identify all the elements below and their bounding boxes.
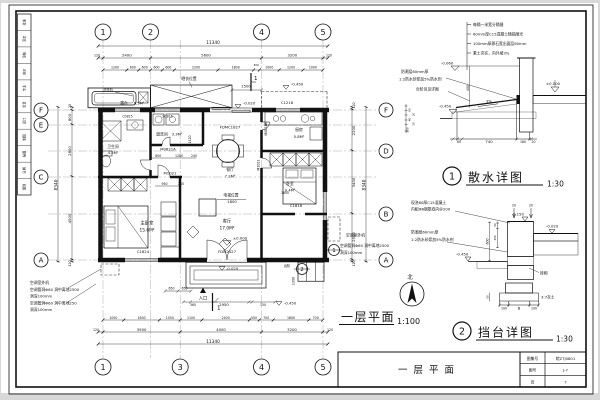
titleblock-field-value: J-7 (562, 368, 568, 373)
level-entry: -0.020 (226, 266, 239, 271)
d1-level: -0.450 (439, 104, 452, 109)
signature-cell: 图别 (21, 184, 26, 190)
dim: 2800 (67, 146, 72, 156)
axis-label: E (39, 122, 43, 130)
plan-title: 一层平面 (341, 310, 395, 324)
room-name: 露台 (120, 101, 128, 106)
opening-label: M1021 (164, 171, 178, 176)
dim: 2950 (219, 302, 229, 307)
dim: 1100 (187, 316, 195, 320)
room-name: 盥洗间 (156, 132, 168, 137)
dim: 1420 (188, 135, 192, 143)
section-mark: 1 (217, 306, 221, 312)
dim: 1000 (309, 66, 317, 70)
signature-cell: 日期 (21, 167, 26, 173)
d2-note: 现浇60厚C15混凝土 (411, 200, 446, 205)
dim: 1800 (138, 316, 146, 320)
axis-label: B (384, 211, 389, 219)
tv-label: 电视位置 (223, 193, 238, 198)
dim: 1050 (109, 316, 117, 320)
dim: 600 (130, 66, 136, 70)
ac-note: 空调管洞Φ60 洞中离地250 (30, 301, 77, 306)
d2-dim: 20 (512, 204, 516, 208)
d2-dim: 600 (486, 238, 490, 244)
dim: 3200 (287, 327, 297, 332)
dim: 700 (263, 316, 269, 320)
room-area: 7.2M² (225, 174, 236, 179)
room-name: 餐厅 (226, 167, 234, 172)
dim: 120 (327, 328, 333, 332)
d1-dim: 20 (412, 113, 416, 117)
dim: 1500 (241, 84, 251, 89)
dim: 120 (68, 260, 72, 266)
level-side: -0.450 (284, 301, 297, 306)
d1-note: 100mm厚卵石宽出面层60mm (473, 41, 527, 46)
north-label: 北 (407, 273, 413, 281)
level-rear: -0.450 (291, 82, 304, 87)
room-name: 卧室 (286, 181, 294, 186)
steps-label: 台阶 (284, 263, 291, 268)
axis-label: 3 (178, 363, 183, 372)
dim: 1200 (111, 66, 119, 70)
d1-note: 每隔一米宽分隔缝 (473, 22, 504, 27)
dim: 600 (142, 66, 148, 70)
detail-ref-1: 1 (332, 248, 336, 254)
dim: 120 (94, 54, 100, 58)
dim: 2200 (351, 125, 356, 135)
d1-dim: 400 (466, 85, 470, 91)
room-area: 17.0M² (220, 226, 235, 232)
dim: 600 (153, 66, 159, 70)
dim: 3400 (351, 177, 356, 187)
ac-note: 空调管洞Φ60 洞中离地2500 (340, 243, 390, 248)
titleblock-field-value: 皖ZTJ0801 (556, 356, 576, 361)
drawing-sheet: 批准 审定 审核 校对 专业 负责 设计 制图 描图 日期 图别 1 2 4 5… (0, 0, 600, 400)
d1-title: 散水详图 (468, 170, 524, 185)
room-area: 15.6M² (140, 228, 155, 234)
dim: 1800 (227, 199, 237, 204)
d1-dim: 740 (485, 139, 493, 144)
d2-level: -0.450 (456, 252, 469, 257)
signature-cell: 审核 (21, 51, 26, 58)
opening-label: C1218 (281, 100, 294, 105)
dim-overall-right: 8340 (362, 179, 368, 190)
d1-dim: 40 (408, 118, 412, 122)
axis-label: 4 (259, 28, 264, 37)
dim-overall-bottom: 11340 (206, 339, 220, 345)
d2-number: 2 (459, 326, 465, 337)
dim: 1390 (292, 277, 296, 285)
dim: 20 (68, 104, 72, 108)
d2-dim: 20 (529, 204, 533, 208)
dim: 300 (254, 63, 260, 67)
titleblock-drawing-title: 一层平面 (398, 365, 460, 376)
dim: 600 (165, 66, 171, 70)
opening-label: FDM2427 (218, 249, 237, 254)
dim: 700 (313, 316, 319, 320)
dim: 240 (191, 154, 197, 158)
d2-note: 内配Φ6钢筋双向@200 (411, 207, 451, 212)
dim-overall-left: 8340 (54, 179, 60, 190)
dim: 800 (67, 113, 72, 121)
room-area: 9.4M² (285, 188, 296, 193)
signature-cell: 制图 (21, 134, 26, 140)
entry-label: 入口 (199, 296, 208, 302)
d2-level: -0.020 (546, 224, 559, 229)
dim: 1800 (287, 316, 295, 320)
plan-scale: 1:100 (397, 317, 420, 326)
opening-label: M0821A (160, 147, 176, 152)
room-area: 3.3M² (172, 132, 183, 137)
opening-label: FDMC1827 (220, 125, 241, 130)
d1-dim: 60 (457, 140, 461, 144)
signature-cell: 校对 (21, 68, 26, 75)
d1-dim: 3% (486, 99, 492, 104)
d1-level: ±0.000 (546, 81, 561, 86)
d1-level: -0.060 (441, 61, 454, 66)
axis-label: A (384, 257, 389, 265)
drying-label: 晒衣位置 (181, 76, 196, 81)
washer-label: 洗衣机 (103, 87, 113, 92)
axis-label: 1 (100, 28, 105, 37)
d1-note: 素土夯实，向外坡3% (473, 51, 510, 56)
ac-note: 洞深100mm (30, 307, 53, 312)
d2-dim: 100 (501, 307, 507, 311)
dim: 1000 (265, 66, 273, 70)
dim: 1800 (232, 66, 240, 70)
opening-label: C1824 (137, 249, 150, 254)
dim: 360 (190, 303, 196, 307)
dim: 500 (251, 316, 257, 320)
room-name: 客厅 (223, 218, 232, 225)
section-mark: 1 (254, 76, 258, 82)
dim: 650 (168, 286, 174, 290)
d2-dim: B (518, 306, 521, 311)
axis-label: 5 (320, 363, 325, 372)
titleblock-field-label: 页 (531, 379, 535, 384)
dim: 120 (352, 102, 356, 108)
dim: 1200 (287, 66, 295, 70)
d1-dim: 20 (531, 140, 535, 144)
signature-cell: 描图 (21, 151, 26, 157)
ac-note: 洞深100mm (340, 250, 363, 255)
room-name: 厨房 (295, 127, 303, 132)
d2-title: 挡台详图 (478, 325, 534, 340)
dim: 120 (326, 54, 332, 58)
d1-note: 60mm厚C15混凝土随捣随光 (473, 32, 523, 37)
axis-label: F (39, 107, 43, 115)
d1-sidenote: 防潮层60mm厚 (401, 69, 429, 74)
level-zero: ±0.000 (233, 236, 248, 241)
dim: 1050 (166, 316, 174, 320)
d2-note: 防潮层60mm厚 (411, 230, 439, 235)
dim: 2400 (222, 316, 230, 320)
signature-cell: 设计 (21, 117, 26, 124)
d1-dim: 180 (520, 140, 526, 144)
opening-label: C0815 (122, 115, 132, 119)
d1-dim: 20 (412, 122, 416, 126)
dim: 2400 (122, 53, 132, 58)
dim: 120 (93, 328, 99, 332)
dim: 120 (352, 260, 356, 266)
room-name: 卫生间 (107, 144, 119, 149)
opening-label: M1021 (257, 160, 261, 171)
signature-cell: 批准 (21, 18, 26, 25)
dim: 150 (260, 303, 266, 307)
d2-dim: 100 (531, 307, 537, 311)
room-area: 6.5M² (134, 101, 145, 106)
room-area: 4.5M² (108, 150, 119, 155)
axis-label: 2 (148, 28, 153, 37)
d2-scale: 1:30 (556, 335, 573, 344)
detail-ref-2: 2 (300, 267, 304, 273)
d1-dim: 60 (408, 108, 412, 112)
ac-note: 空调管洞Φ60 洞中离地2500 (30, 287, 80, 292)
blueprint-svg: 批准 审定 审核 校对 专业 负责 设计 制图 描图 日期 图别 1 2 4 5… (0, 0, 600, 400)
axis-label: C (39, 174, 44, 182)
dim: 1280 (175, 154, 183, 158)
d2-dim: 150 (493, 235, 497, 241)
axis-label: F (384, 107, 388, 115)
titleblock-field-label: 图集号 (527, 356, 539, 361)
d1-sidenote: 台阶另见详图 (416, 87, 439, 92)
d2-label: 3:7灰土 (541, 295, 555, 300)
dim: 5600 (201, 53, 211, 58)
ac-note: 空调室外机 (30, 280, 49, 285)
ac-note: 空调室外机 (346, 233, 365, 238)
dim: 4500 (67, 213, 72, 223)
d1-sidenote: 1:2防水砂浆加5%防水剂 (399, 77, 442, 82)
dim: 950 (161, 182, 167, 186)
dim: 800 (155, 154, 161, 158)
room-area: 5.8M² (294, 134, 305, 139)
axis-label: A (39, 257, 44, 265)
d2-dim: 50 (493, 223, 497, 227)
d2-dim: 50 (486, 295, 490, 299)
axis-label: D (383, 148, 388, 156)
axis-label: 4 (259, 363, 264, 372)
signature-cell: 负责 (21, 101, 26, 107)
signature-cell: 审定 (21, 35, 26, 42)
signature-cell: 专业 (21, 85, 26, 91)
d1-number: 1 (449, 171, 455, 182)
dim: 3900 (137, 327, 147, 332)
titleblock-field-label: 图号 (529, 368, 537, 373)
ac-note: 洞深100mm (30, 294, 53, 299)
d2-note: 1:2防水砂浆加5%防水剂 (411, 237, 454, 242)
axis-label: 5 (320, 28, 325, 37)
d2-label: 砖砌 (540, 271, 548, 276)
dim: 4000 (216, 327, 226, 332)
dim-overall-top: 11340 (206, 40, 220, 46)
axis-label: 1 (100, 363, 105, 372)
d1-dim: 100 (406, 127, 410, 133)
level-rear2: -0.020 (243, 101, 256, 106)
dim: 2200 (192, 66, 200, 70)
d1-scale: 1:30 (547, 180, 564, 189)
dim: 3200 (287, 53, 297, 58)
room-name: 主卧室 (141, 220, 155, 227)
